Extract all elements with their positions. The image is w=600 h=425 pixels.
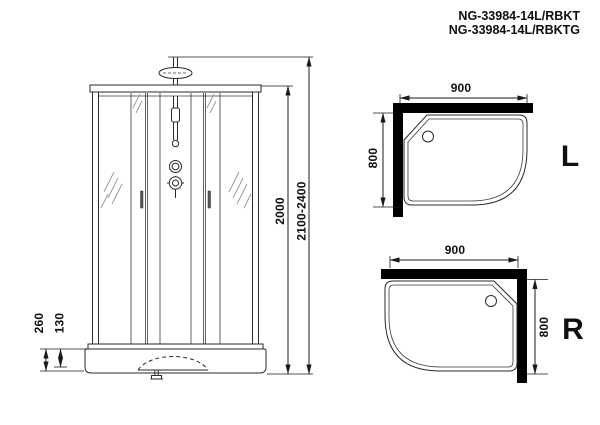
plan-l-tray-outline	[404, 115, 527, 205]
door-handle-right	[208, 191, 211, 208]
dim-plan-l-width: 900	[451, 81, 472, 95]
plan-r-tray-outline	[385, 281, 517, 371]
dim-plan-r-width: 900	[445, 243, 466, 257]
plan-l-back-wall	[393, 103, 533, 113]
plan-l-drain-circle	[423, 131, 434, 142]
shower-cabin-drawing: NG-33984-14L/RBKT NG-33984-14L/RBKTG	[0, 0, 600, 425]
orientation-label-l: L	[561, 140, 579, 173]
elevation-view: 260 130 2000 2100-2400	[32, 57, 313, 379]
dim-plan-l-depth: 800	[366, 148, 380, 169]
shower-head	[159, 57, 192, 86]
plan-r-width-dimension: 900	[390, 243, 518, 268]
plan-view-left: 900 800 L	[366, 81, 579, 217]
plan-r-side-wall	[517, 269, 527, 383]
diverter-knob	[167, 176, 184, 198]
dim-cabin-height: 2000	[273, 197, 287, 225]
door-handle-left	[141, 191, 144, 208]
plan-r-drain-circle	[486, 296, 497, 307]
dim-total-height: 2100-2400	[295, 181, 309, 240]
technical-drawing-page: NG-33984-14L/RBKT NG-33984-14L/RBKTG	[0, 0, 600, 425]
tray-rim-band	[88, 344, 263, 349]
dimension-heights: 2000 2100-2400	[168, 57, 313, 374]
model-number-line-2: NG-33984-14L/RBKTG	[449, 23, 580, 37]
title-block: NG-33984-14L/RBKT NG-33984-14L/RBKTG	[449, 9, 581, 37]
model-number-line-1: NG-33984-14L/RBKT	[458, 9, 580, 23]
dimension-tray-heights: 260 130	[32, 313, 88, 371]
plan-r-back-wall	[381, 269, 527, 279]
plan-l-side-wall	[393, 103, 403, 217]
dim-plan-r-depth: 800	[537, 317, 551, 338]
plan-r-depth-dimension: 800	[527, 280, 551, 375]
glass-panels	[93, 92, 259, 344]
dim-tray-step: 130	[53, 313, 67, 334]
top-frame-bar	[90, 85, 261, 92]
shower-tray	[85, 349, 266, 373]
orientation-label-r: R	[562, 313, 584, 346]
plan-view-right: 900 800 R	[381, 243, 584, 383]
dim-tray-height: 260	[32, 313, 46, 334]
shower-column	[172, 96, 180, 147]
control-knob	[170, 161, 182, 173]
